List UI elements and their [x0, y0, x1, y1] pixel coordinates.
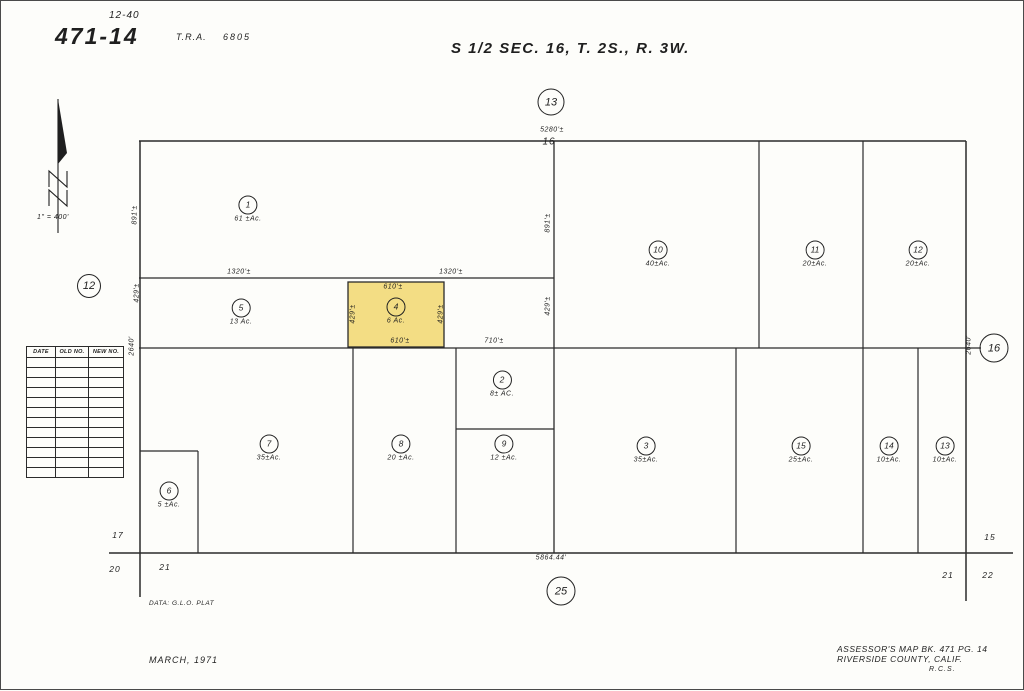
revision-table-cell: [89, 418, 124, 428]
dimension-label: 2640': [966, 335, 973, 354]
section-number-label: 15: [984, 532, 995, 542]
parcel-acreage: 20±Ac.: [803, 261, 828, 268]
parcel-acreage: 20±Ac.: [906, 261, 931, 268]
dimension-label: 429'±: [438, 304, 445, 323]
parcel-4-label: 46 Ac.: [387, 298, 406, 325]
parcel-acreage: 40±Ac.: [646, 261, 671, 268]
revision-table-row: [27, 408, 124, 418]
adjacent-page-circle-16: 16: [980, 334, 1009, 363]
revision-table-header-row: DATEOLD NO.NEW NO.: [27, 347, 124, 358]
parcel-number-circle: 7: [260, 435, 279, 454]
assessor-map-page: { "page": { "sheet_ref_top": "12-40", "m…: [0, 0, 1024, 690]
assessor-credit-initials: R.C.S.: [929, 666, 956, 673]
revision-table-cell: [56, 398, 89, 408]
parcel-2-label: 28± AC.: [490, 371, 514, 398]
revision-table-cell: [27, 468, 56, 478]
parcel-number-circle: 10: [649, 241, 668, 260]
parcel-number-circle: 6: [159, 482, 178, 501]
revision-table-row: [27, 448, 124, 458]
dimension-label: 891'±: [132, 205, 139, 224]
revision-table-row: [27, 398, 124, 408]
parcel-acreage: 35±Ac.: [634, 457, 659, 464]
parcel-number-circle: 11: [806, 241, 825, 260]
revision-table-cell: [56, 358, 89, 368]
revision-table-cell: [56, 458, 89, 468]
revision-table-cell: [89, 438, 124, 448]
revision-table-cell: [27, 368, 56, 378]
revision-table-cell: [56, 378, 89, 388]
parcel-acreage: 35±Ac.: [257, 455, 282, 462]
sheet-reference: 12-40: [109, 10, 140, 21]
revision-table-header: NEW NO.: [89, 347, 124, 358]
parcel-5-label: 513 Ac.: [230, 299, 253, 326]
revision-table-row: [27, 358, 124, 368]
revision-table-row: [27, 418, 124, 428]
parcel-number-circle: 1: [239, 196, 258, 215]
parcel-number-circle: 12: [909, 241, 928, 260]
assessor-credit-line-2: RIVERSIDE COUNTY, CALIF.: [837, 654, 962, 664]
parcel-3-label: 335±Ac.: [634, 437, 659, 464]
parcel-acreage: 25±Ac.: [789, 457, 814, 464]
revision-table-cell: [89, 358, 124, 368]
tra-label: T.R.A.: [176, 32, 207, 42]
dimension-label: 429'±: [134, 283, 141, 302]
parcel-acreage: 8± AC.: [490, 391, 514, 398]
adjacent-page-circle-12: 12: [77, 274, 101, 298]
parcel-number-circle: 3: [637, 437, 656, 456]
parcel-acreage: 10±Ac.: [933, 457, 958, 464]
revision-table-cell: [56, 388, 89, 398]
dimension-label: 1320'±: [439, 269, 463, 276]
dimension-label: 5864.44': [536, 555, 567, 562]
revision-table-cell: [27, 428, 56, 438]
revision-table-cell: [56, 448, 89, 458]
parcel-9-label: 912 ±Ac.: [490, 435, 517, 462]
adjacent-page-circle-25: 25: [547, 577, 576, 606]
map-book-page-number: 471-14: [55, 23, 139, 50]
revision-table-cell: [56, 368, 89, 378]
dimension-label: 610'±: [383, 284, 402, 291]
parcel-12-label: 1220±Ac.: [906, 241, 931, 268]
dimension-label: 1320'±: [227, 269, 251, 276]
parcel-acreage: 6 Ac.: [387, 318, 405, 325]
assessor-credit-line-1: ASSESSOR'S MAP BK. 471 PG. 14: [837, 644, 987, 654]
revision-table-cell: [56, 438, 89, 448]
revision-table-cell: [27, 448, 56, 458]
revision-table-row: [27, 428, 124, 438]
parcel-8-label: 820 ±Ac.: [387, 435, 414, 462]
section-number-label: 16: [542, 137, 555, 148]
parcel-number-circle: 8: [392, 435, 411, 454]
parcel-15-label: 1525±Ac.: [789, 437, 814, 464]
parcel-10-label: 1040±Ac.: [646, 241, 671, 268]
dimension-label: 891'±: [545, 213, 552, 232]
adjacent-page-circle-13: 13: [538, 89, 565, 116]
parcel-acreage: 10±Ac.: [877, 457, 902, 464]
revision-table-cell: [27, 378, 56, 388]
revision-table-row: [27, 438, 124, 448]
parcel-number-circle: 14: [880, 437, 899, 456]
dimension-label: 610'±: [390, 338, 409, 345]
revision-table-cell: [89, 408, 124, 418]
section-number-label: 21: [159, 562, 170, 572]
parcel-7-label: 735±Ac.: [257, 435, 282, 462]
parcel-1-label: 161 ±Ac.: [234, 196, 261, 223]
dimension-label: 710'±: [484, 338, 503, 345]
parcel-number-circle: 4: [387, 298, 406, 317]
revision-table-cell: [89, 448, 124, 458]
revision-table-row: [27, 388, 124, 398]
section-number-label: 22: [982, 570, 993, 580]
revision-table-cell: [56, 468, 89, 478]
revision-table-cell: [89, 398, 124, 408]
tra-value: 6805: [223, 32, 251, 42]
revision-table-row: [27, 458, 124, 468]
revision-table-cell: [89, 428, 124, 438]
parcel-acreage: 20 ±Ac.: [387, 455, 414, 462]
parcel-acreage: 13 Ac.: [230, 319, 253, 326]
revision-table-cell: [27, 358, 56, 368]
revision-table-header: DATE: [27, 347, 56, 358]
parcel-13-label: 1310±Ac.: [933, 437, 958, 464]
map-linework: [1, 1, 1024, 691]
parcel-number-circle: 9: [495, 435, 514, 454]
revision-table-cell: [27, 438, 56, 448]
parcel-number-circle: 13: [936, 437, 955, 456]
revision-table-row: [27, 468, 124, 478]
revision-table-cell: [56, 408, 89, 418]
dimension-label: 2640': [129, 336, 136, 355]
revision-table-cell: [27, 408, 56, 418]
north-arrow-icon: [49, 99, 67, 233]
revision-table-cell: [56, 418, 89, 428]
revision-table-cell: [89, 388, 124, 398]
parcel-number-circle: 2: [493, 371, 512, 390]
section-number-label: 20: [109, 564, 120, 574]
data-source-note: DATA: G.L.O. PLAT: [149, 600, 214, 607]
parcel-acreage: 12 ±Ac.: [490, 455, 517, 462]
map-date: MARCH, 1971: [149, 655, 218, 665]
revision-table-header: OLD NO.: [56, 347, 89, 358]
map-title: S 1/2 SEC. 16, T. 2S., R. 3W.: [451, 40, 690, 57]
dimension-label: 5280'±: [540, 127, 564, 134]
revision-table-cell: [89, 378, 124, 388]
section-number-label: 21: [942, 570, 953, 580]
parcel-6-label: 65 ±Ac.: [158, 482, 181, 509]
revision-table-cell: [27, 388, 56, 398]
parcel-number-circle: 5: [232, 299, 251, 318]
parcel-acreage: 61 ±Ac.: [234, 216, 261, 223]
revision-table: DATEOLD NO.NEW NO.: [26, 346, 124, 478]
revision-table-cell: [27, 458, 56, 468]
revision-table-cell: [27, 418, 56, 428]
section-number-label: 17: [112, 530, 123, 540]
revision-table-cell: [56, 428, 89, 438]
revision-table-cell: [89, 368, 124, 378]
revision-table-cell: [89, 458, 124, 468]
scale-label: 1" = 400': [37, 214, 69, 221]
parcel-11-label: 1120±Ac.: [803, 241, 828, 268]
revision-table-row: [27, 378, 124, 388]
revision-table-cell: [89, 468, 124, 478]
revision-table-row: [27, 368, 124, 378]
parcel-number-circle: 15: [792, 437, 811, 456]
parcel-14-label: 1410±Ac.: [877, 437, 902, 464]
dimension-label: 429'±: [545, 296, 552, 315]
parcel-acreage: 5 ±Ac.: [158, 502, 181, 509]
dimension-label: 429'±: [350, 304, 357, 323]
revision-table-cell: [27, 398, 56, 408]
